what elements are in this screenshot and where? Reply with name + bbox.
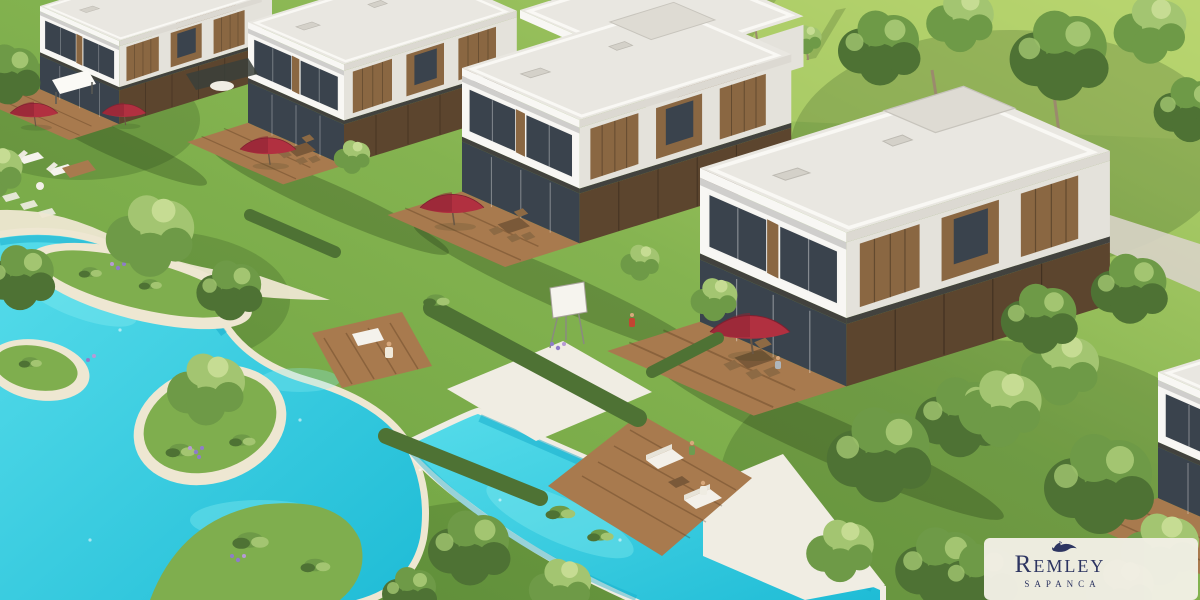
- person: [689, 441, 695, 455]
- side-table: [36, 182, 44, 190]
- logo-card: Remley SAPANCA: [984, 538, 1198, 600]
- scene-render: [0, 0, 1200, 600]
- brand-lockup: Remley SAPANCA: [1015, 538, 1106, 589]
- brand-subtitle: SAPANCA: [1024, 579, 1100, 589]
- render-stage: Remley SAPANCA: [0, 0, 1200, 600]
- brand-title: Remley: [1015, 552, 1106, 578]
